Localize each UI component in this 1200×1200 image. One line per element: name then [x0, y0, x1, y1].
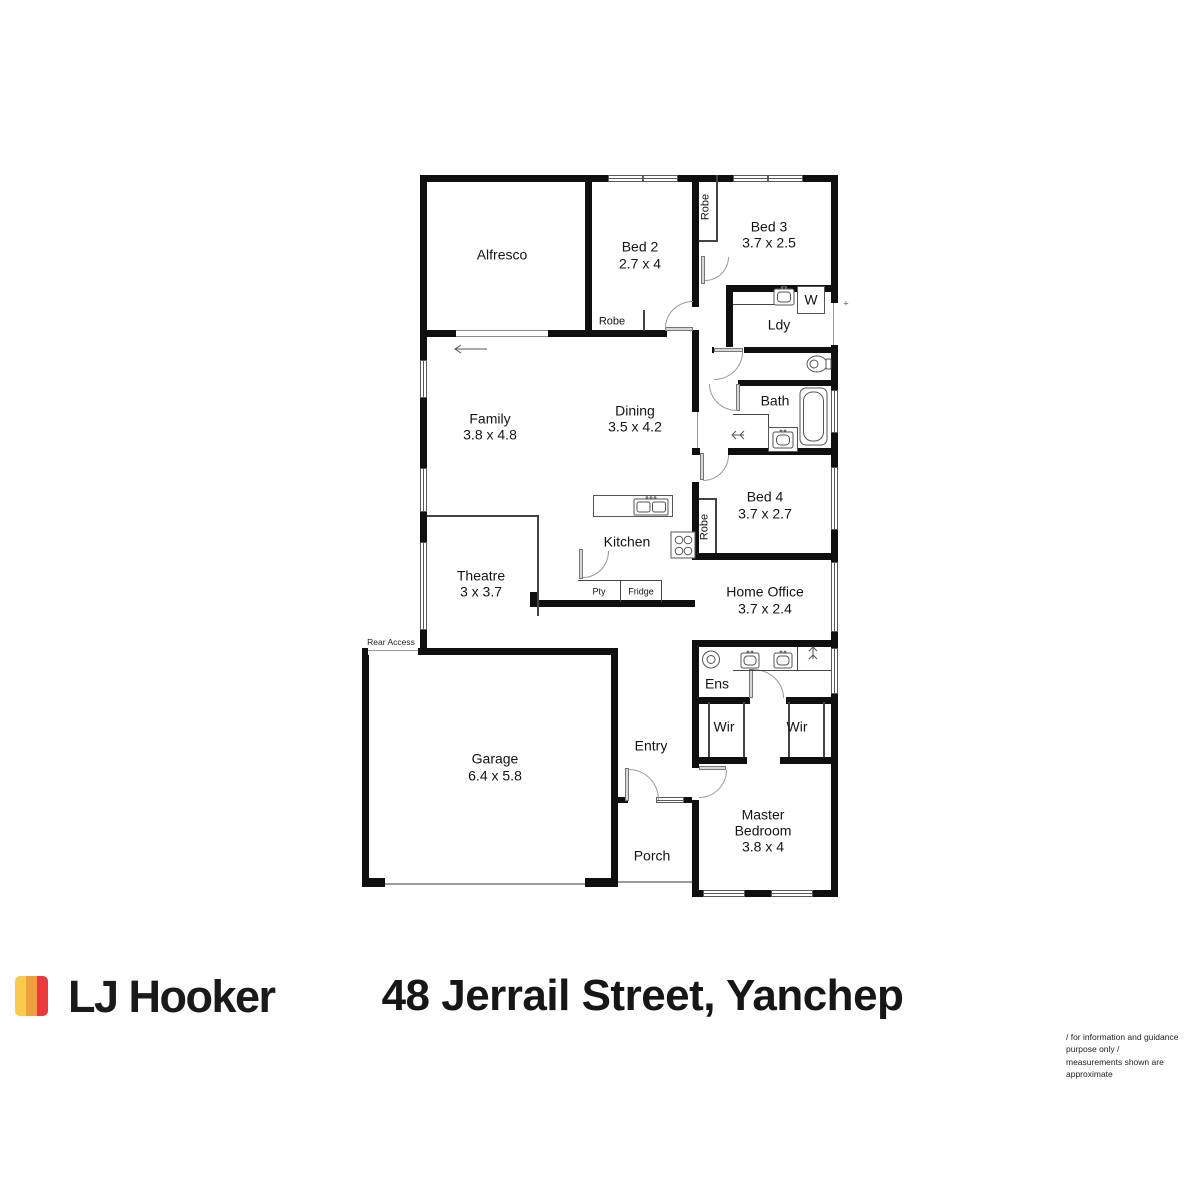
wir-partition: [708, 702, 710, 757]
room-label-wir-left: Wir: [714, 719, 735, 736]
ens-vanity-line: [733, 670, 799, 671]
bathtub-icon: [799, 387, 828, 446]
wir-partition: [823, 702, 825, 757]
wall: [692, 330, 699, 412]
window: [643, 175, 678, 182]
wall: [530, 592, 537, 607]
wall: [585, 175, 592, 337]
bath-shower-line: [733, 414, 769, 415]
door-arc: [753, 669, 784, 698]
fridge-label: Fridge: [628, 587, 654, 598]
exterior-door-mark: +: [843, 299, 848, 310]
logo-stripe-yellow: [15, 976, 26, 1016]
door-arc: [705, 257, 729, 281]
rear-access-line: [368, 650, 418, 651]
door-arc: [665, 301, 693, 328]
agency-name: LJ Hooker: [68, 971, 275, 1023]
porch-edge-line: [618, 881, 692, 883]
sliding-door-arrow-icon: [450, 343, 490, 355]
room-dims-bed3: 3.7 x 2.5: [742, 235, 796, 252]
window: [768, 175, 803, 182]
bath-shower-head-icon: [729, 428, 746, 443]
logo-stripe-red: [37, 976, 48, 1016]
theatre-wall-thin: [427, 515, 539, 517]
room-label-wir-right: Wir: [787, 719, 808, 736]
wall: [831, 175, 838, 897]
room-label-entry: Entry: [635, 738, 668, 755]
front-door-arc: [629, 769, 659, 800]
wall: [585, 330, 667, 337]
theatre-wall-thin: [537, 515, 539, 616]
door-opening: [750, 697, 786, 704]
room-label-kitchen: Kitchen: [604, 534, 651, 551]
laundry-door-leaf: [833, 303, 834, 345]
door-arc: [714, 352, 743, 380]
wall: [692, 175, 699, 307]
room-label-bed3: Bed 3: [751, 219, 788, 236]
disclaimer-text: / for information and guidance purpose o…: [1066, 1031, 1200, 1080]
door-arc: [709, 384, 737, 411]
wall: [530, 600, 695, 607]
window: [831, 467, 838, 530]
wall-thin: [715, 498, 717, 557]
window: [733, 175, 768, 182]
robe-label-bed2: Robe: [599, 315, 625, 328]
room-dims-family: 3.8 x 4.8: [463, 427, 517, 444]
property-address: 48 Jerrail Street, Yanchep: [380, 971, 905, 1021]
wall-thin: [699, 240, 718, 242]
room-label-bed4: Bed 4: [747, 489, 784, 506]
window: [703, 890, 745, 897]
wc-toilet-icon: [804, 353, 832, 375]
door-arc: [699, 770, 727, 798]
wall: [726, 285, 733, 347]
window: [771, 890, 813, 897]
ens-basin-icon: [740, 650, 760, 669]
room-label-bath: Bath: [761, 393, 790, 410]
ljhooker-logo-icon: [15, 976, 48, 1016]
room-label-alfresco: Alfresco: [477, 247, 528, 264]
rear-access-label: Rear Access: [367, 637, 415, 647]
logo-stripe-orange: [26, 976, 37, 1016]
room-label-bed2: Bed 2: [622, 239, 659, 256]
room-dims-bed2: 2.7 x 4: [619, 256, 661, 273]
sliding-door: [456, 330, 548, 337]
ens-shower-line: [797, 670, 831, 671]
wall: [738, 380, 838, 386]
wall-thin: [716, 175, 718, 242]
window: [420, 542, 427, 630]
window: [420, 468, 427, 512]
room-dims-home-office: 3.7 x 2.4: [738, 601, 792, 618]
room-dims-theatre: 3 x 3.7: [460, 584, 502, 601]
room-label-family: Family: [469, 411, 510, 428]
room-dims-dining: 3.5 x 4.2: [608, 419, 662, 436]
ens-toilet-icon: [700, 649, 722, 670]
wall: [611, 648, 618, 887]
room-dims-master: 3.8 x 4: [742, 839, 784, 856]
wir-partition: [743, 702, 745, 757]
wall: [780, 757, 838, 764]
ens-shower-line: [797, 647, 798, 671]
room-label-theatre: Theatre: [457, 568, 505, 585]
robe-label-bed4: Robe: [698, 514, 711, 540]
wall: [684, 797, 692, 803]
washer-label: W: [804, 292, 817, 309]
garage-door-line: [385, 883, 585, 885]
disclaimer-line-2: measurements shown are approximate: [1066, 1056, 1200, 1081]
disclaimer-line-1: / for information and guidance purpose o…: [1066, 1031, 1200, 1056]
room-label-home-office: Home Office: [726, 584, 804, 601]
kitchen-double-sink-icon: [633, 496, 669, 516]
door-arc: [583, 551, 609, 578]
floor-plan-canvas: Alfresco Bed 2 2.7 x 4 Bed 3 3.7 x 2.5 R…: [0, 0, 1200, 1200]
wall: [362, 648, 369, 887]
room-label-master-1: Master: [742, 807, 785, 824]
window: [420, 360, 427, 398]
pantry-divider-line: [620, 580, 621, 602]
room-dims-garage: 6.4 x 5.8: [468, 768, 522, 785]
room-label-garage: Garage: [472, 751, 519, 768]
laundry-trough-icon: [773, 285, 795, 306]
room-label-porch: Porch: [634, 848, 671, 865]
room-label-ens: Ens: [705, 676, 729, 693]
room-label-master-2: Bedroom: [735, 823, 792, 840]
ens-basin-icon: [773, 650, 793, 669]
room-label-ldy: Ldy: [768, 317, 791, 334]
window: [608, 175, 643, 182]
room-label-dining: Dining: [615, 403, 655, 420]
door-arc: [703, 455, 729, 481]
fridge-divider-line: [661, 580, 662, 602]
bath-basin-icon: [772, 429, 794, 449]
room-dims-bed4: 3.7 x 2.7: [738, 506, 792, 523]
robe-partition: [643, 310, 645, 331]
wall: [692, 553, 838, 560]
cooktop-icon: [670, 531, 696, 559]
open-archway-line: [697, 412, 698, 450]
laundry-bench-line: [733, 304, 776, 305]
wall: [692, 757, 747, 764]
wall-thin: [699, 498, 716, 500]
ens-shower-head-icon: [805, 644, 822, 661]
window: [831, 562, 838, 632]
window: [831, 390, 838, 433]
door-opening: [700, 448, 728, 455]
window: [831, 648, 838, 694]
robe-label-bed3: Robe: [699, 194, 712, 220]
pantry-label: Pty: [592, 587, 605, 598]
door-opening: [692, 768, 699, 800]
entry-sidelight-window: [656, 797, 684, 803]
